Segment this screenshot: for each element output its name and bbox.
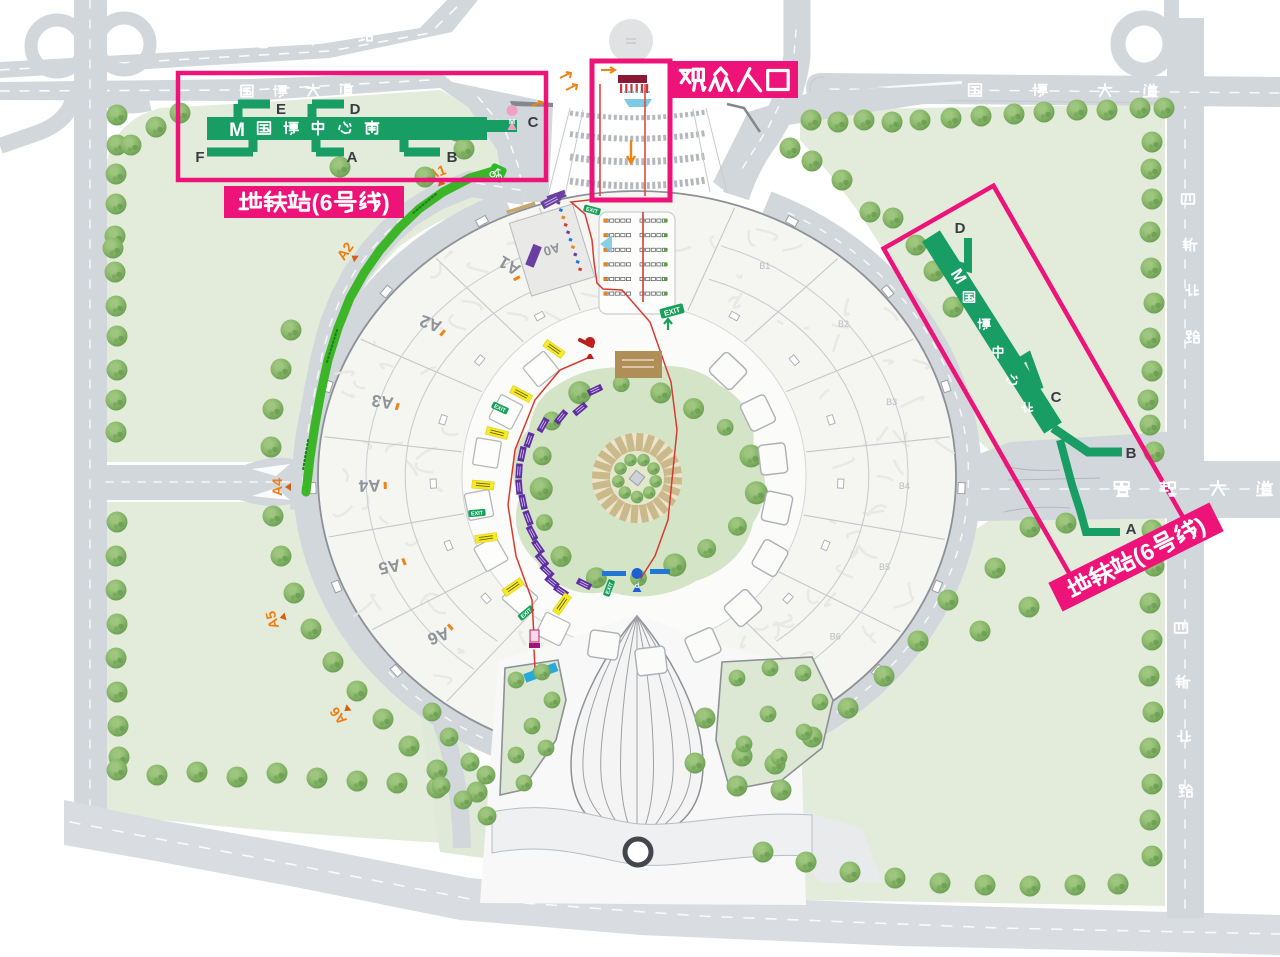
svg-text:M: M <box>229 120 245 141</box>
svg-text:EXIT: EXIT <box>471 510 484 517</box>
svg-text:d: d <box>635 583 639 590</box>
svg-text:B1: B1 <box>759 261 770 271</box>
svg-text:C: C <box>528 114 539 131</box>
svg-text:B5: B5 <box>879 562 890 572</box>
svg-text:(: ( <box>312 189 320 215</box>
svg-text:A: A <box>1126 521 1137 538</box>
svg-text:6: 6 <box>320 189 333 215</box>
svg-text:D: D <box>350 101 361 118</box>
svg-text:B2: B2 <box>838 319 849 329</box>
svg-text:D: D <box>955 220 966 237</box>
svg-text:B3: B3 <box>886 397 897 407</box>
svg-text:B: B <box>447 149 458 166</box>
svg-text:F: F <box>195 149 204 166</box>
svg-text:A3: A3 <box>370 391 394 413</box>
svg-text:C: C <box>1051 389 1062 406</box>
svg-text:B4: B4 <box>899 481 910 491</box>
svg-text:B6: B6 <box>830 632 841 642</box>
svg-text:A: A <box>347 149 358 166</box>
svg-text:): ) <box>382 189 390 215</box>
svg-text:A4: A4 <box>358 476 381 495</box>
svg-text:A4: A4 <box>269 478 285 496</box>
svg-text:B: B <box>1126 445 1137 462</box>
svg-text:M: M <box>509 117 515 126</box>
svg-text:E: E <box>276 101 286 118</box>
